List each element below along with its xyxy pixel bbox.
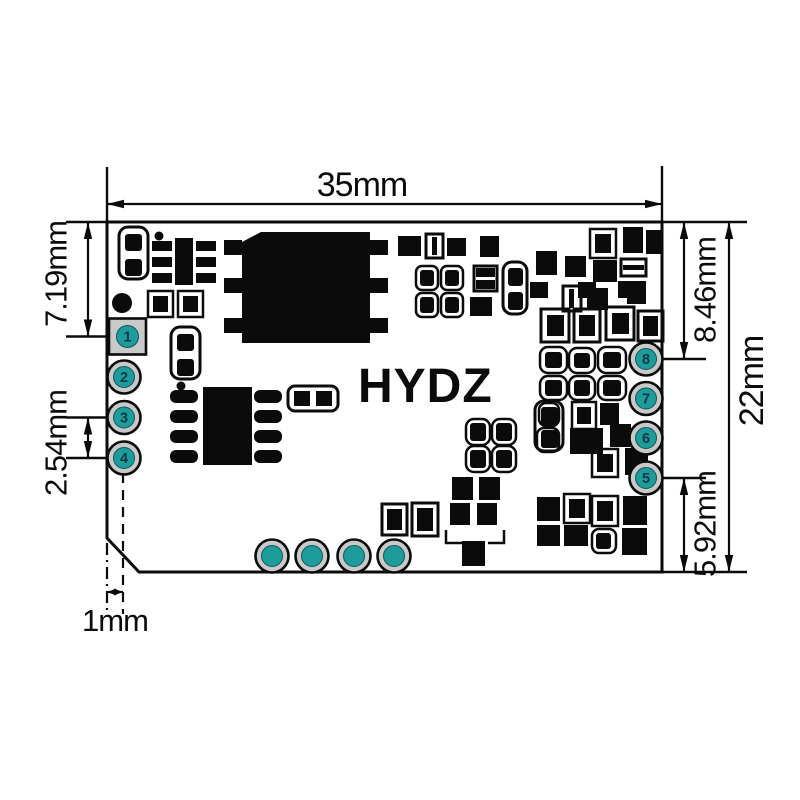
pad-2-number: 2 <box>120 370 128 386</box>
pad-7-number: 7 <box>642 392 650 408</box>
dim-pin5-offset-label: 5.92mm <box>688 471 723 577</box>
dim-pin8-offset-label: 8.46mm <box>688 237 723 343</box>
pad-3-number: 3 <box>120 411 128 427</box>
diagram-canvas: HYDZ <box>0 0 800 800</box>
pad-7: 7 <box>630 382 663 415</box>
pad-3: 3 <box>108 401 141 434</box>
pad-5-number: 5 <box>642 471 650 487</box>
dim-width-label: 35mm <box>317 166 407 204</box>
pad-6: 6 <box>630 422 663 455</box>
dim-height: 22mm <box>729 222 771 572</box>
pad-1-number: 1 <box>123 330 131 346</box>
pad-8-number: 8 <box>642 352 650 368</box>
pad-6-number: 6 <box>642 431 650 447</box>
dim-width: 35mm <box>107 166 662 221</box>
pad-4: 4 <box>108 442 141 475</box>
dim-pin1-offset: 7.19mm <box>39 221 108 336</box>
pad-2: 2 <box>108 361 141 394</box>
main-ic <box>224 232 388 343</box>
via-hole <box>112 293 132 313</box>
pad-4-number: 4 <box>120 451 128 467</box>
fiducial-dot <box>155 232 164 241</box>
pad-8: 8 <box>630 343 663 376</box>
fiducial-dot <box>177 382 186 391</box>
dim-pin1-offset-label: 7.19mm <box>39 221 74 327</box>
pcb-dimension-diagram: HYDZ <box>0 0 800 800</box>
pad-5: 5 <box>630 462 663 495</box>
dim-pin5-offset: 5.92mm <box>662 471 747 577</box>
dim-pin-pitch: 2.54mm <box>39 390 108 496</box>
pad-1: 1 <box>109 319 146 355</box>
dim-pin-pitch-label: 2.54mm <box>39 390 74 496</box>
dim-edge-offset-label: 1mm <box>82 603 148 638</box>
brand-text: HYDZ <box>358 360 493 413</box>
dim-height-label: 22mm <box>733 336 771 426</box>
